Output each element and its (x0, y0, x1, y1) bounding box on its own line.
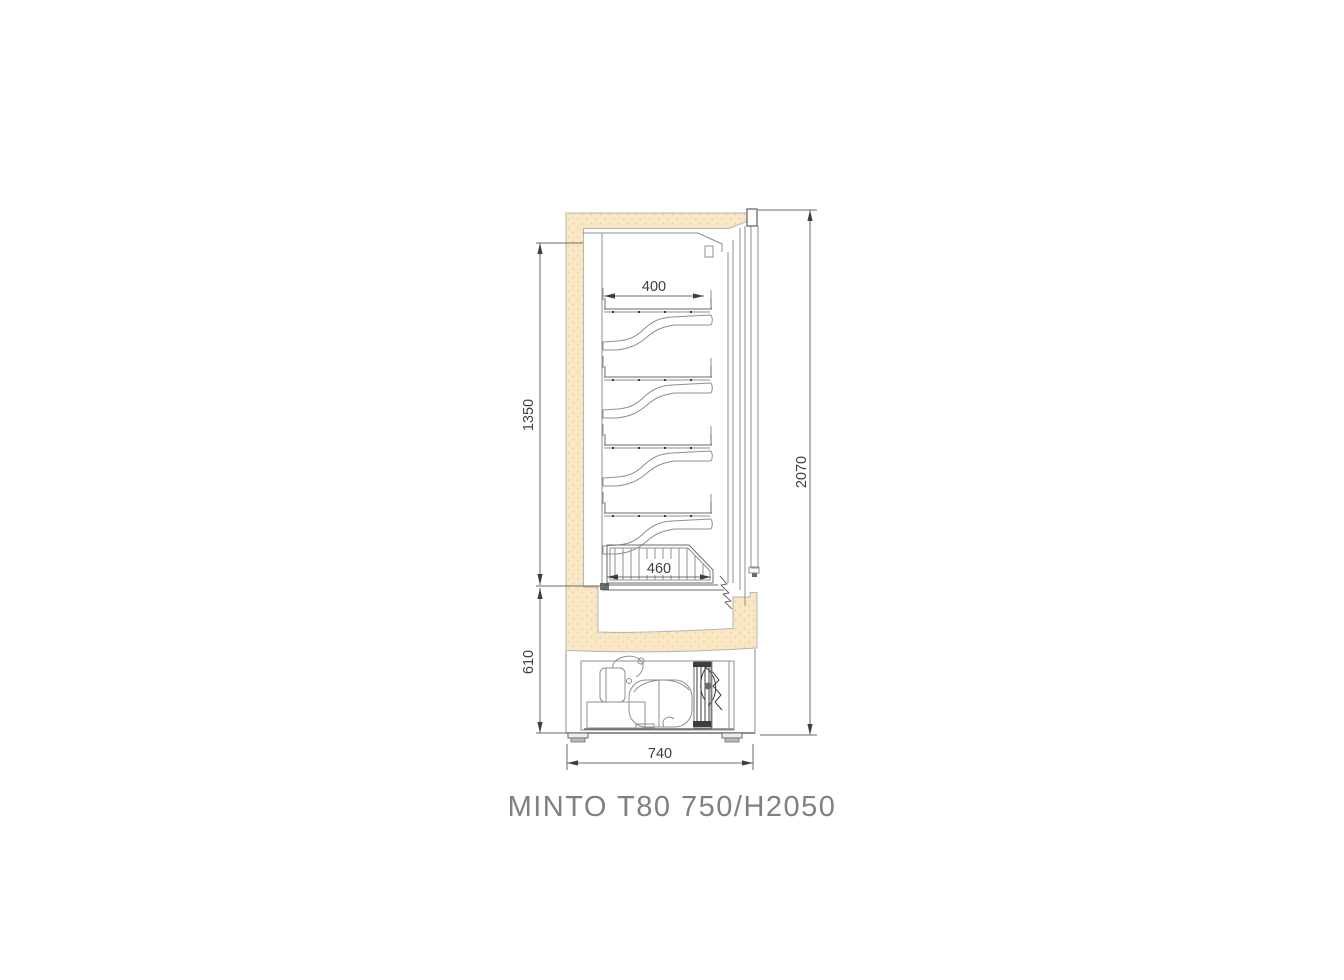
shelf-bracket (603, 315, 712, 350)
foot-right (722, 733, 742, 742)
page: 1350 610 2070 740 400 (0, 0, 1344, 980)
dim-label-610: 610 (521, 650, 537, 674)
dimension-total-height: 2070 (758, 210, 817, 735)
dim-label-2070: 2070 (794, 456, 810, 488)
door-glass-panel (751, 226, 758, 568)
shelf-3 (603, 424, 712, 486)
suction-pipe (600, 668, 625, 702)
shelf-2 (603, 356, 712, 418)
dimension-display-height: 1350 (521, 243, 602, 586)
drain-coil (720, 576, 732, 609)
shelf-bracket (603, 383, 712, 418)
glass-door (720, 209, 759, 609)
shelf-bracket (603, 451, 712, 486)
basket-platform (602, 585, 724, 590)
machine-compartment (566, 649, 755, 742)
dim-label-460: 460 (647, 561, 671, 577)
air-outlet (705, 246, 713, 257)
dim-label-1350: 1350 (521, 399, 537, 431)
technical-drawing: 1350 610 2070 740 400 (0, 0, 1344, 980)
compressor-unit (584, 656, 734, 729)
foot-left (568, 733, 588, 742)
drawing-title: MINTO T80 750/H2050 (0, 791, 1344, 824)
shelf-bracket (603, 519, 712, 554)
dim-label-740: 740 (648, 746, 672, 762)
dimension-shelf-width: 400 (604, 279, 704, 299)
door-top-hinge (747, 209, 757, 226)
dimension-machine-height: 610 (521, 588, 566, 733)
dimension-depth: 740 (567, 744, 753, 770)
dim-label-400: 400 (642, 279, 666, 295)
